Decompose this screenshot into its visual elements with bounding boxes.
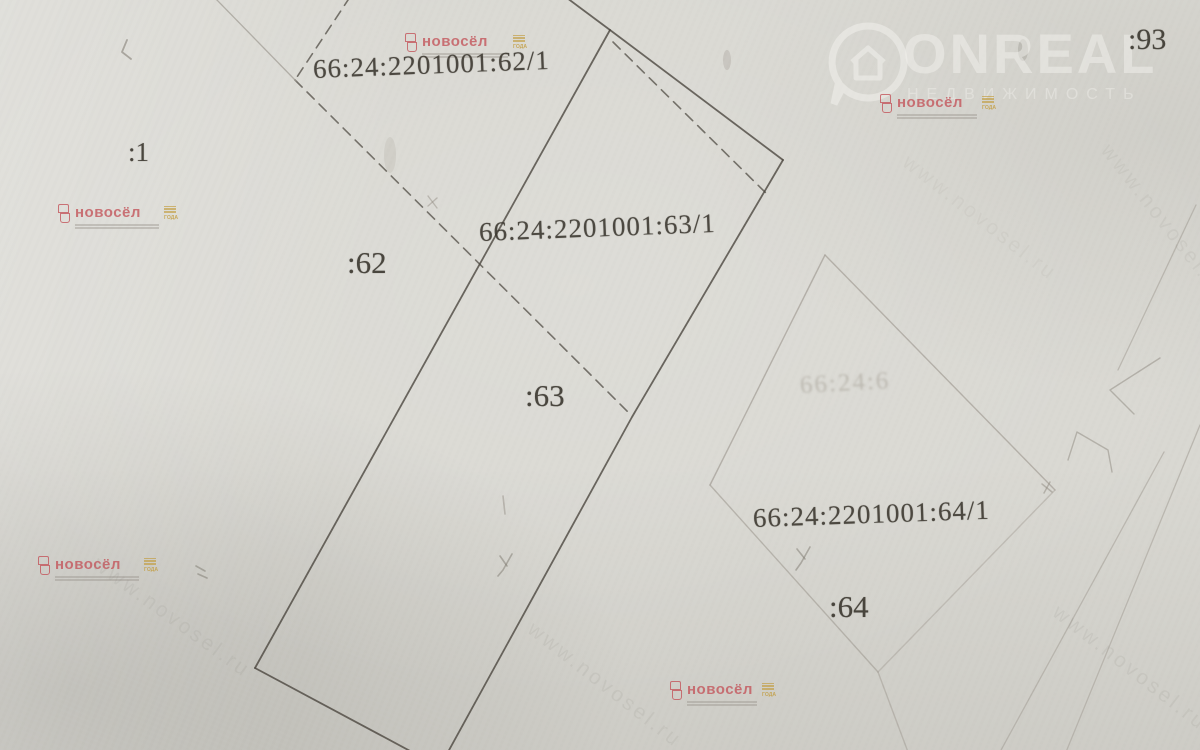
novosel-logo-text: новосёл bbox=[897, 94, 963, 111]
parcel-63-apex-extension bbox=[567, 0, 610, 30]
novosel-award-badge: ГОДА bbox=[981, 94, 995, 111]
smudge-mid bbox=[384, 137, 396, 173]
cadastral-map-scan: ONREAL НЕДВИЖИМОСТЬ новосёл ГОДА новосёл… bbox=[0, 0, 1200, 750]
parcel-62-label: :62 bbox=[347, 245, 387, 281]
parcel-63-top-edge bbox=[610, 30, 783, 160]
parcel-64-topleft-edge bbox=[710, 255, 825, 485]
novosel-icon bbox=[880, 94, 893, 113]
novosel-watermark-logo: новосёл ГОДА bbox=[58, 204, 177, 229]
parcel-63-label: :63 bbox=[525, 378, 565, 414]
parcel-93-label: :93 bbox=[1128, 23, 1166, 57]
novosel-logo-text: новосёл bbox=[75, 204, 141, 221]
novosel-icon bbox=[670, 681, 683, 700]
onreal-logo-text: ONREAL bbox=[903, 26, 1157, 82]
parcel-1-label: :1 bbox=[128, 137, 149, 168]
novosel-icon bbox=[38, 556, 51, 575]
parcel-63-bottom-edge bbox=[255, 668, 412, 750]
parcel-63-left-edge bbox=[255, 30, 610, 668]
pencil-mark-x2b bbox=[428, 198, 437, 206]
parcel-64-south-extension bbox=[878, 672, 908, 750]
novosel-watermark-logo: новосёл ГОДА bbox=[880, 94, 995, 119]
road-line-left bbox=[1000, 452, 1164, 750]
parcel-64-label: :64 bbox=[829, 589, 869, 625]
boundary-hook-lower bbox=[1068, 432, 1112, 472]
novosel-tagline-lines bbox=[897, 114, 977, 119]
pencil-tick-topleft bbox=[122, 40, 131, 59]
subparcel-63-1-dashed-edge bbox=[613, 42, 770, 197]
novosel-tagline-lines bbox=[75, 224, 159, 229]
novosel-award-badge: ГОДА bbox=[143, 556, 157, 573]
faint-ghost-cadastral-text: 66:24:6 bbox=[799, 367, 891, 400]
pencil-mark-one bbox=[503, 496, 505, 514]
pencil-mark-a2 bbox=[198, 574, 207, 578]
smudge-top-center bbox=[723, 50, 731, 70]
pencil-mark-a1 bbox=[196, 566, 205, 571]
novosel-icon bbox=[58, 204, 71, 223]
subparcel-62-1-dashed-diagonal bbox=[295, 80, 630, 414]
novosel-watermark-logo: новосёл ГОДА bbox=[670, 681, 775, 706]
parcel-63-right-edge bbox=[448, 160, 783, 750]
pencil-mark-x1b bbox=[1044, 482, 1050, 493]
boundary-hook-upper bbox=[1110, 358, 1160, 414]
novosel-award-badge: ГОДА bbox=[163, 204, 177, 221]
novosel-tagline-lines bbox=[687, 701, 757, 706]
parcel-62-faint-boundary bbox=[215, 0, 296, 81]
novosel-award-badge: ГОДА bbox=[761, 681, 775, 698]
novosel-logo-text: новосёл bbox=[687, 681, 753, 698]
